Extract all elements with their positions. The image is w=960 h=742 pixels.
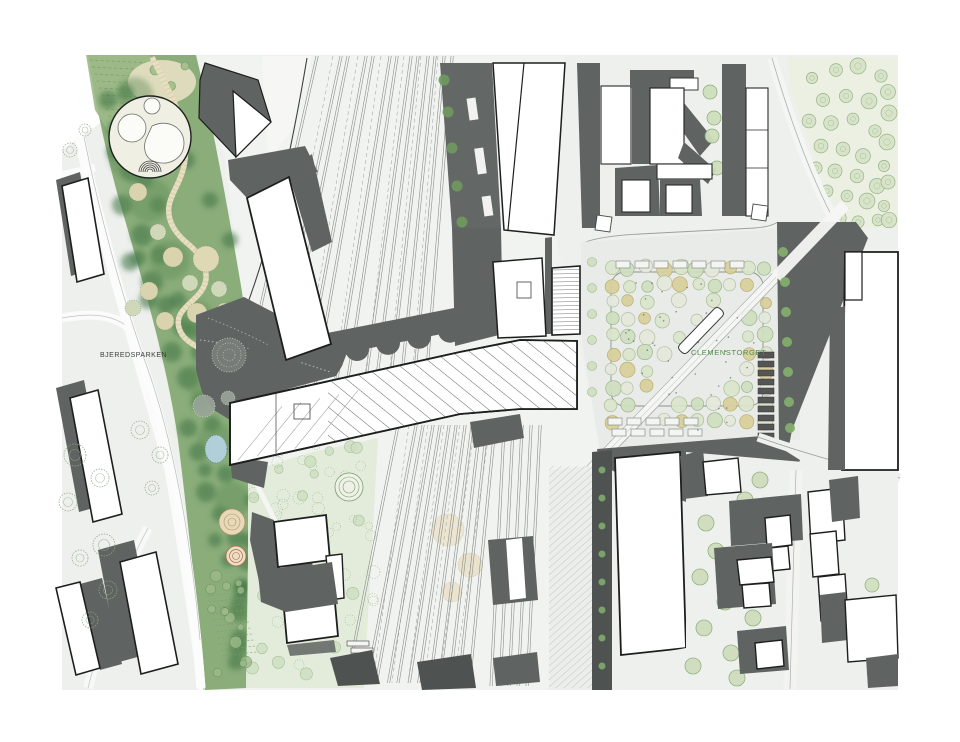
svg-text:CLEMENSTORGET: CLEMENSTORGET — [691, 348, 766, 357]
svg-text:BJEREDSPARKEN: BJEREDSPARKEN — [100, 352, 167, 359]
